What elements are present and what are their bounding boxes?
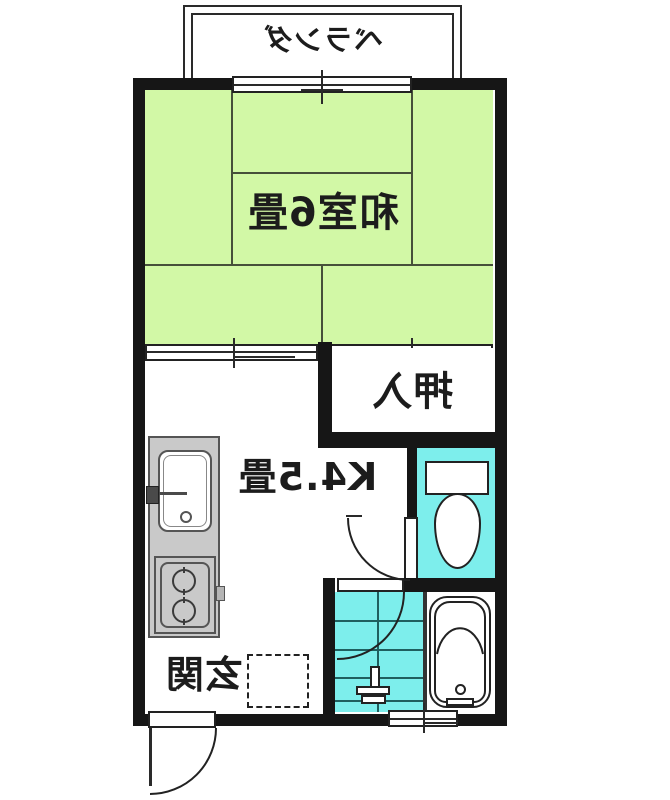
window-bottom-offset xyxy=(424,722,458,724)
window-top-offset xyxy=(301,89,343,91)
faucet-spout xyxy=(159,492,187,495)
washroom-tap-base2 xyxy=(361,695,386,704)
tub-faucet-base xyxy=(446,698,474,706)
toilet-tank xyxy=(425,461,489,495)
tile-line xyxy=(335,620,423,622)
washroom-door xyxy=(337,578,404,592)
burner-icon xyxy=(172,599,196,623)
tub-faucet-icon xyxy=(455,684,466,695)
tatami-line xyxy=(231,90,233,265)
kitchen-label: K4.5畳 xyxy=(225,458,390,496)
tatami-line xyxy=(321,264,323,348)
sliding-door-left-tick xyxy=(233,338,235,368)
toilet-door-tick xyxy=(346,515,362,517)
burner-icon xyxy=(172,569,196,593)
sliding-door-left-offset xyxy=(235,356,295,358)
tatami-line xyxy=(145,264,493,266)
floor-plan: ベランダ 和室6畳 押入 xyxy=(0,0,670,800)
entrance-label: 玄関 xyxy=(148,656,260,694)
toilet-door xyxy=(404,517,418,581)
balcony-label: ベランダ xyxy=(233,26,413,55)
washroom-tap-base xyxy=(356,686,390,695)
washitsu-label: 和室6畳 xyxy=(200,193,446,233)
tatami-line xyxy=(231,172,413,174)
tatami-line xyxy=(411,90,413,265)
washroom-left-wall xyxy=(323,578,335,714)
toilet-left-wall xyxy=(407,448,417,517)
sliding-door-left-midline xyxy=(147,351,316,353)
tile-line xyxy=(335,649,423,651)
bath-top-wall xyxy=(404,578,507,592)
window-top-tick xyxy=(321,70,323,104)
window-bottom-tick xyxy=(423,703,425,733)
faucet-icon xyxy=(146,486,159,504)
closet-label: 押入 xyxy=(332,372,493,412)
stove-knob xyxy=(216,586,225,601)
sink-drain-icon xyxy=(180,511,192,523)
entrance-door-open-leaf xyxy=(149,728,152,786)
entrance-door xyxy=(148,711,216,728)
closet-bottom-wall xyxy=(318,432,507,448)
